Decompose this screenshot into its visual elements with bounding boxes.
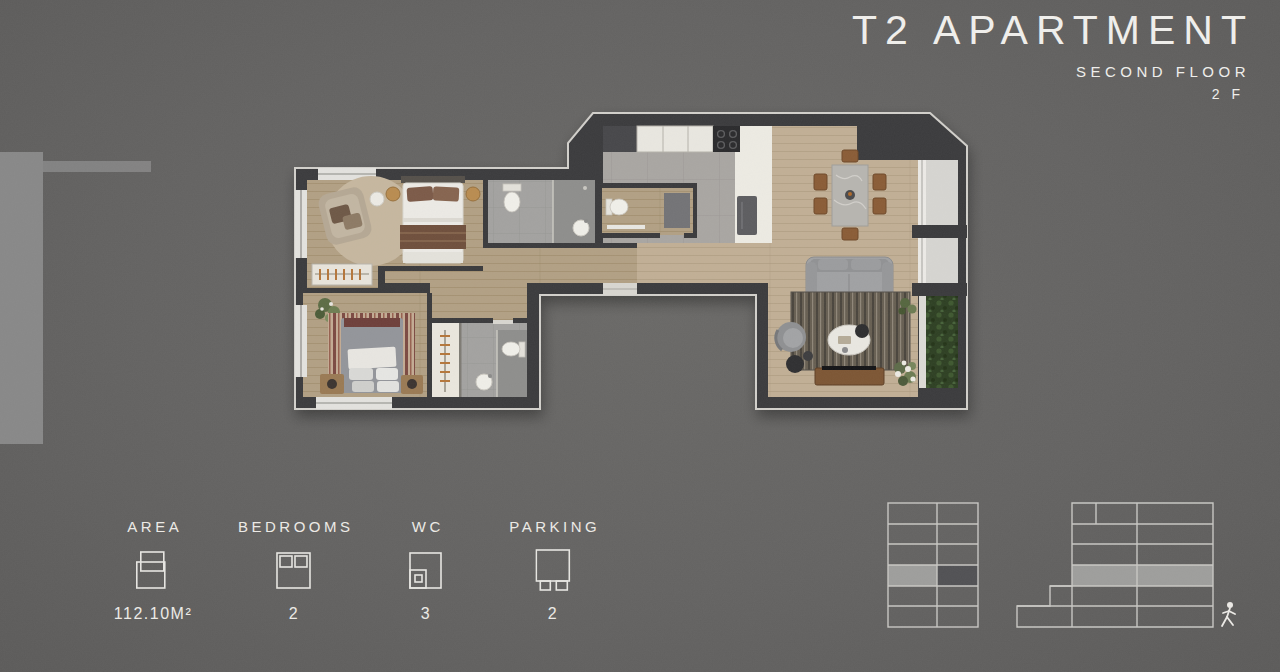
legend-label: WC [412, 518, 444, 535]
legend-label: BEDROOMS [238, 518, 354, 535]
bedrooms-icon [276, 552, 312, 590]
floor-name: SECOND FLOOR [852, 63, 1250, 80]
legend-value: 3 [421, 605, 431, 623]
wc-icon [409, 552, 443, 590]
legend-value: 112.10M² [114, 605, 192, 623]
legend-value: 2 [548, 605, 558, 623]
legend-item-wc: WC 3 [409, 518, 443, 623]
legend-item-bedrooms: BEDROOMS 2 [238, 518, 350, 623]
legend-item-parking: PARKING 2 [509, 518, 596, 623]
area-icon [136, 551, 170, 591]
legend-value: 2 [289, 605, 299, 623]
page: T2 APARTMENT SECOND FLOOR 2 F AREA 112.1… [0, 0, 1280, 672]
legend-label: PARKING [509, 518, 600, 535]
legend-label: AREA [127, 518, 182, 535]
floor-short: 2 F [852, 86, 1246, 102]
parking-icon [535, 549, 571, 593]
title-block: T2 APARTMENT SECOND FLOOR 2 F [852, 8, 1246, 102]
page-title: T2 APARTMENT [852, 8, 1254, 53]
legend-item-area: AREA 112.10M² [114, 518, 192, 623]
